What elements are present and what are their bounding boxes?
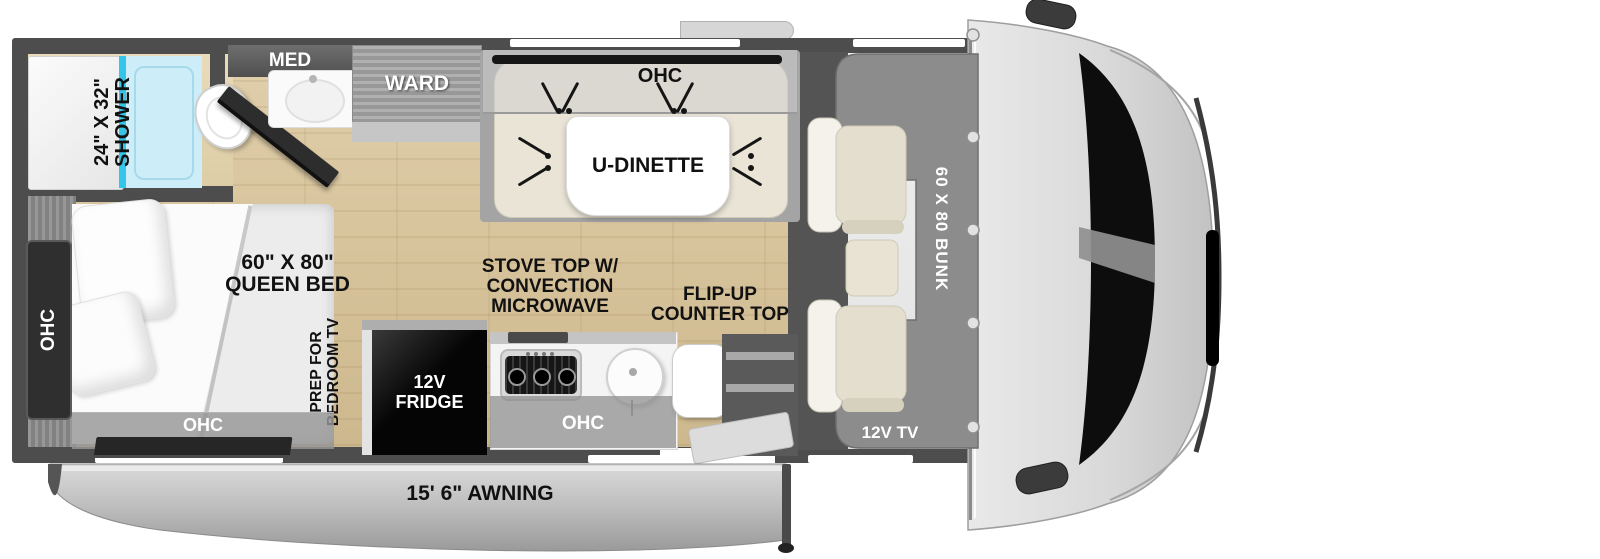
- stove-label: STOVE TOP W/ CONVECTION MICROWAVE: [470, 257, 630, 317]
- stove-icon: [500, 349, 582, 401]
- cab-front: [800, 0, 1230, 559]
- seatbelt-buckle: [556, 108, 562, 114]
- step: [726, 384, 794, 392]
- prep-text-1: PREP FOR: [309, 331, 326, 413]
- prep-text-2: BEDROOM TV: [326, 318, 343, 426]
- awning-right-foot: [778, 543, 794, 553]
- wardrobe: WARD: [352, 45, 482, 123]
- step: [726, 352, 794, 360]
- bath-faucet-icon: [309, 75, 317, 83]
- stove-knobs: [526, 352, 530, 356]
- awning: [30, 455, 810, 559]
- dinette-table: U-DINETTE: [566, 116, 730, 216]
- flip-text-1: FLIP-UP: [640, 285, 800, 305]
- seatbelt-buckle: [566, 108, 572, 114]
- cab-console: [846, 240, 898, 296]
- awning-text: 15' 6" AWNING: [330, 483, 630, 505]
- dinette-text: U-DINETTE: [592, 155, 704, 177]
- seatbelt-buckle: [748, 153, 754, 159]
- shower-label: 24" X 32" SHOWER: [43, 42, 183, 202]
- stove-text-1: STOVE TOP W/: [470, 257, 630, 277]
- fridge: 12V FRIDGE: [372, 330, 487, 455]
- flip-text-2: COUNTER TOP: [640, 305, 800, 325]
- seatbelt-buckle: [545, 153, 551, 159]
- side-mirror-icon: [1024, 0, 1078, 31]
- seatbelt-buckle: [545, 165, 551, 171]
- bed-size-text: 60" X 80": [200, 252, 375, 274]
- ward-text: WARD: [385, 73, 449, 95]
- fridge-text-1: 12V: [413, 373, 445, 392]
- window-top-dinette: [510, 39, 740, 47]
- awning-right-cap: [782, 464, 791, 546]
- dinette-slide-window: [492, 55, 782, 64]
- bath-sink-icon: [285, 79, 345, 123]
- burner-icon: [508, 368, 526, 386]
- passenger-seat: [808, 300, 906, 412]
- rv-floorplan: 24" X 32" SHOWER MED WARD 60" X 80" QUEE…: [0, 0, 1600, 559]
- microwave-handle: [508, 332, 568, 343]
- burner-icon: [558, 368, 576, 386]
- cab-tv-text: 12V TV: [850, 424, 930, 442]
- fridge-text-2: FRIDGE: [395, 393, 463, 412]
- seatbelt-buckle: [671, 108, 677, 114]
- seatbelt-buckle: [681, 108, 687, 114]
- flip-up-label: FLIP-UP COUNTER TOP: [640, 285, 800, 325]
- burner-icon: [533, 368, 551, 386]
- wardrobe-base: [352, 121, 480, 142]
- driver-seat: [808, 118, 906, 234]
- bed-label: 60" X 80" QUEEN BED: [200, 252, 375, 297]
- awning-highlight: [54, 466, 782, 471]
- awning-body: [50, 464, 786, 551]
- bed-text: QUEEN BED: [200, 274, 375, 296]
- shower-size-text: 24" X 32": [92, 78, 113, 166]
- front-grille: [1206, 230, 1219, 366]
- kitchen-ohc-text: OHC: [490, 414, 676, 434]
- bedroom-ohc-side-text: OHC: [39, 309, 59, 351]
- fridge-side-edge: [362, 330, 372, 455]
- stove-text-2: CONVECTION: [470, 277, 630, 297]
- bunk-text: 60 X 80 BUNK: [932, 167, 950, 291]
- bedroom-ohc-side: OHC: [26, 240, 72, 420]
- med-text: MED: [269, 51, 311, 71]
- bath-sink-counter: [268, 70, 358, 128]
- bunk-label: 60 X 80 BUNK: [928, 144, 954, 314]
- bedroom-ohc-bottom-text: OHC: [72, 416, 334, 435]
- kitchen-faucet-icon: [629, 368, 637, 376]
- shower-text: SHOWER: [113, 77, 134, 167]
- stove-text-3: MICROWAVE: [470, 297, 630, 317]
- seatbelt-buckle: [748, 165, 754, 171]
